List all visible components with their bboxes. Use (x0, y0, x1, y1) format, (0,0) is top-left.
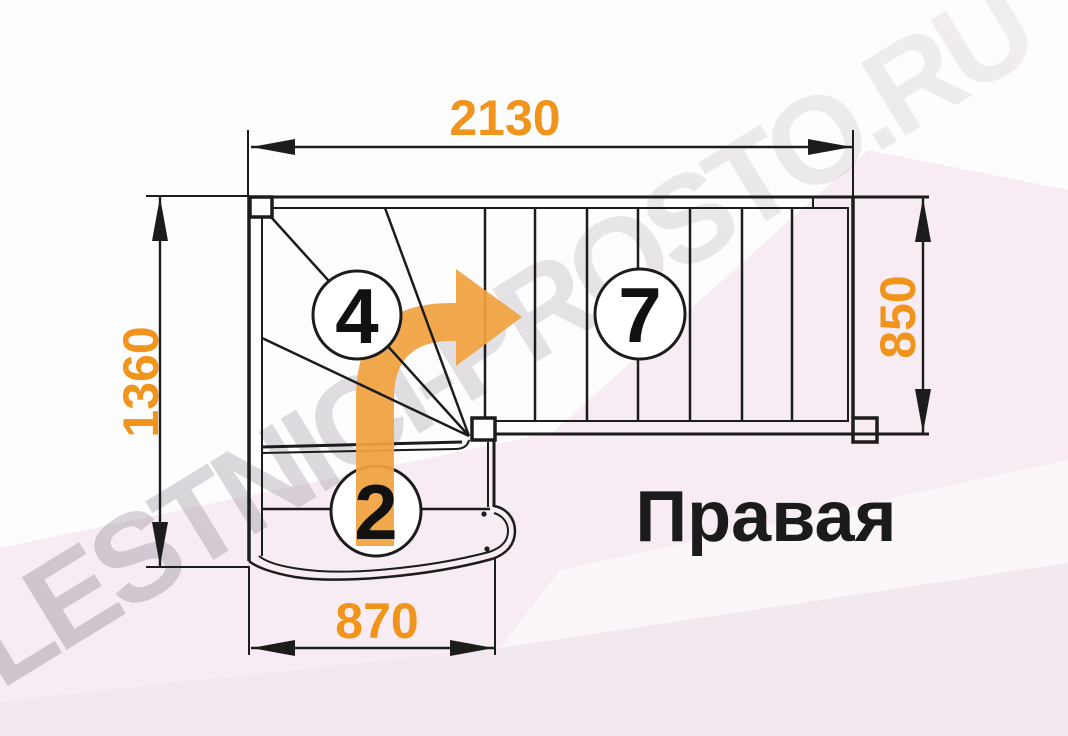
dowel-dot-bottom (484, 546, 489, 551)
staircase-plan-page: LESTNICI-PROSTO.RU (0, 0, 1068, 736)
dimension-bottom-value: 870 (335, 593, 418, 649)
orientation-label: Правая (635, 477, 896, 557)
dimension-left-value: 1360 (113, 326, 169, 437)
upper-flight-step-count: 7 (618, 271, 661, 359)
lower-flight-step-count: 2 (354, 468, 397, 556)
winder-flight-step-count: 4 (335, 272, 378, 360)
dimension-right-value: 850 (870, 275, 926, 358)
dowel-dot-top (481, 511, 486, 516)
staircase-plan-drawing: LESTNICI-PROSTO.RU (0, 0, 1068, 736)
dimension-top-value: 2130 (449, 90, 560, 146)
